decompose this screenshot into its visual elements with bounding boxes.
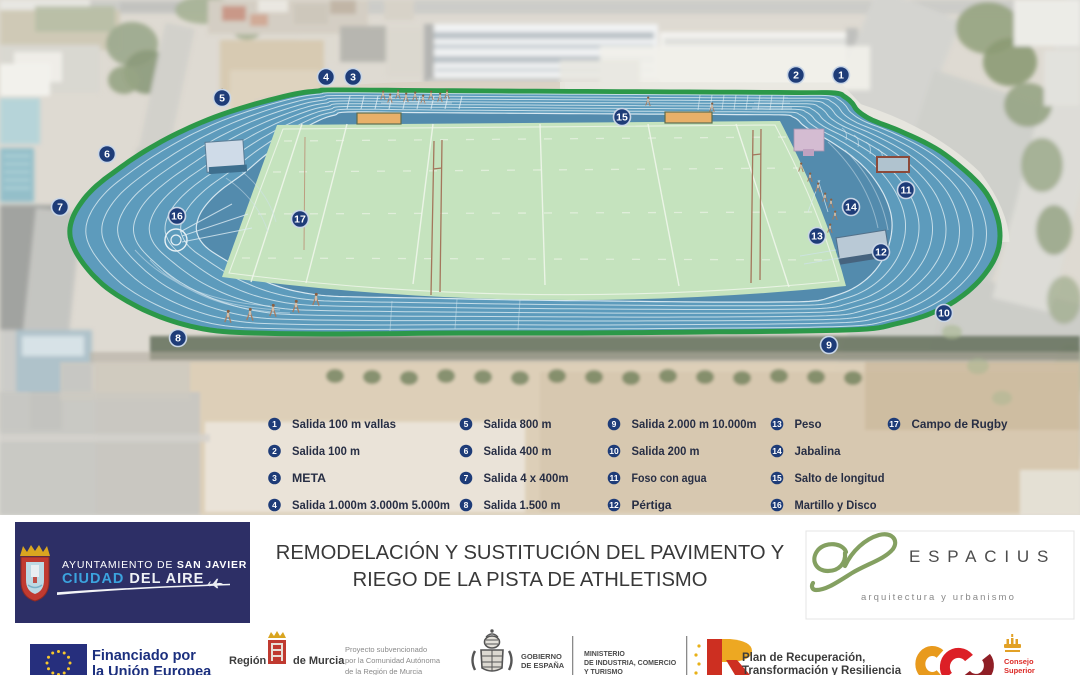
svg-text:DE ESPAÑA: DE ESPAÑA [521, 661, 565, 670]
svg-text:8: 8 [464, 500, 469, 510]
svg-text:Proyecto subvencionado: Proyecto subvencionado [345, 645, 427, 654]
svg-text:Transformación y Resiliencia: Transformación y Resiliencia [742, 665, 902, 675]
svg-text:Peso: Peso [795, 419, 822, 431]
svg-text:13: 13 [772, 419, 782, 429]
svg-text:13: 13 [811, 231, 823, 243]
svg-text:Campo de Rugby: Campo de Rugby [912, 419, 1009, 431]
svg-text:9: 9 [826, 340, 832, 352]
svg-text:Salida 1.500 m: Salida 1.500 m [484, 500, 561, 512]
svg-text:de Murcia: de Murcia [293, 655, 345, 667]
svg-text:arquitectura y urbanismo: arquitectura y urbanismo [861, 592, 1016, 603]
svg-text:Foso con agua: Foso con agua [632, 473, 708, 485]
svg-text:Pértiga: Pértiga [632, 500, 673, 512]
svg-text:Y TURISMO: Y TURISMO [584, 669, 623, 675]
svg-text:Salida 100 m vallas: Salida 100 m vallas [292, 419, 396, 431]
svg-text:Salida 400 m: Salida 400 m [484, 446, 552, 458]
svg-text:1: 1 [838, 70, 844, 82]
svg-text:1: 1 [272, 419, 277, 429]
svg-text:2: 2 [793, 70, 799, 82]
svg-text:Salida 2.000 m 10.000m: Salida 2.000 m 10.000m [632, 419, 757, 431]
svg-text:Consejo: Consejo [1004, 657, 1034, 666]
svg-text:Salida 1.000m 3.000m 5.000m: Salida 1.000m 3.000m 5.000m [292, 500, 450, 512]
svg-text:15: 15 [772, 473, 782, 483]
svg-text:10: 10 [938, 308, 950, 320]
svg-text:por la Comunidad Autónoma: por la Comunidad Autónoma [345, 656, 441, 665]
svg-text:Financiado por: Financiado por [92, 648, 196, 664]
svg-text:de la Región de Murcia: de la Región de Murcia [345, 667, 423, 675]
svg-text:4: 4 [272, 500, 277, 510]
svg-text:Salida 800 m: Salida 800 m [484, 419, 552, 431]
svg-text:Superior: Superior [1004, 666, 1035, 675]
svg-text:Jabalina: Jabalina [795, 446, 842, 458]
svg-text:Región: Región [229, 655, 267, 667]
svg-text:11: 11 [900, 185, 911, 197]
svg-text:RIEGO DE LA PISTA DE ATHLETISM: RIEGO DE LA PISTA DE ATHLETISMO [353, 569, 708, 591]
svg-text:GOBIERNO: GOBIERNO [521, 652, 562, 661]
svg-text:17: 17 [889, 419, 899, 429]
svg-text:6: 6 [104, 149, 110, 161]
svg-text:7: 7 [464, 473, 469, 483]
svg-text:5: 5 [464, 419, 469, 429]
svg-text:Salida 100 m: Salida 100 m [292, 446, 360, 458]
svg-text:7: 7 [57, 202, 63, 214]
svg-text:12: 12 [875, 247, 887, 259]
svg-text:Plan de Recuperación,: Plan de Recuperación, [742, 652, 865, 664]
svg-text:16: 16 [772, 500, 782, 510]
svg-text:5: 5 [219, 93, 225, 105]
svg-text:11: 11 [610, 473, 619, 483]
svg-text:DE INDUSTRIA, COMERCIO: DE INDUSTRIA, COMERCIO [584, 660, 677, 667]
svg-text:2: 2 [272, 446, 277, 456]
svg-text:14: 14 [845, 202, 857, 214]
svg-text:META: META [292, 473, 326, 485]
svg-text:la Unión Europea: la Unión Europea [92, 664, 212, 675]
svg-text:Martillo y Disco: Martillo y Disco [795, 500, 877, 512]
svg-text:ESPACIUS: ESPACIUS [909, 547, 1056, 566]
svg-text:12: 12 [609, 500, 619, 510]
svg-text:3: 3 [272, 473, 277, 483]
svg-text:Salto de longitud: Salto de longitud [795, 473, 885, 485]
svg-text:AYUNTAMIENTO DE SAN JAVIER: AYUNTAMIENTO DE SAN JAVIER [62, 559, 247, 571]
svg-text:8: 8 [175, 333, 181, 345]
svg-text:3: 3 [350, 72, 356, 84]
svg-text:Salida 200 m: Salida 200 m [632, 446, 700, 458]
svg-text:16: 16 [171, 211, 183, 223]
svg-text:Salida 4 x 400m: Salida 4 x 400m [484, 473, 569, 485]
svg-text:10: 10 [609, 446, 619, 456]
svg-text:14: 14 [772, 446, 782, 456]
svg-text:15: 15 [616, 112, 628, 124]
svg-text:4: 4 [323, 72, 329, 84]
svg-text:MINISTERIO: MINISTERIO [584, 651, 625, 658]
svg-text:17: 17 [294, 214, 306, 226]
svg-text:REMODELACIÓN Y SUSTITUCIÓN DEL: REMODELACIÓN Y SUSTITUCIÓN DEL PAVIMENTO… [276, 541, 785, 564]
svg-text:6: 6 [464, 446, 469, 456]
svg-text:CIUDAD DEL AIRE: CIUDAD DEL AIRE [62, 571, 204, 587]
svg-text:9: 9 [612, 419, 617, 429]
